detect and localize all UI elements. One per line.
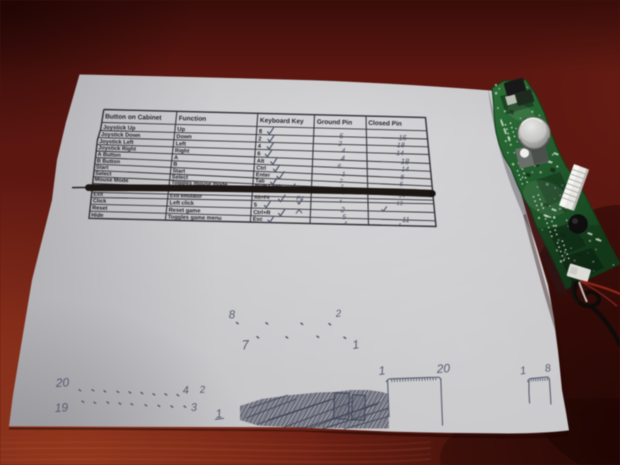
svg-text:4: 4 <box>341 154 345 163</box>
svg-text:6: 6 <box>337 163 341 170</box>
svg-text:2: 2 <box>340 205 345 214</box>
svg-text:Ctrl: Ctrl <box>256 166 266 172</box>
svg-text:Exit: Exit <box>93 192 103 198</box>
svg-text:Right: Right <box>175 148 190 155</box>
svg-text:Alt: Alt <box>257 159 265 165</box>
svg-text:Reset: Reset <box>92 205 108 211</box>
svg-text:Up: Up <box>177 127 185 133</box>
svg-text:Ctrl+R: Ctrl+R <box>253 210 270 216</box>
svg-text:Down: Down <box>176 134 192 140</box>
svg-text:Joystick Up: Joystick Up <box>103 125 136 132</box>
svg-text:20: 20 <box>435 361 451 376</box>
svg-text:11: 11 <box>402 215 410 224</box>
svg-text:13: 13 <box>396 201 403 207</box>
svg-text:1: 1 <box>342 171 346 178</box>
svg-text:4: 4 <box>182 385 189 397</box>
svg-text:2: 2 <box>337 141 342 148</box>
svg-text:Left click: Left click <box>169 200 194 207</box>
svg-text:Keyboard Key: Keyboard Key <box>260 117 304 125</box>
svg-text:Closed Pin: Closed Pin <box>368 120 402 128</box>
svg-text:Left: Left <box>176 141 187 147</box>
svg-text:4: 4 <box>344 221 347 227</box>
svg-text:B: B <box>173 162 177 168</box>
svg-text:Reset game: Reset game <box>169 208 201 215</box>
svg-text:19: 19 <box>54 400 68 415</box>
svg-text:20: 20 <box>54 375 69 390</box>
svg-text:Hide: Hide <box>91 213 103 219</box>
svg-text:18: 18 <box>401 157 411 166</box>
svg-text:Esc: Esc <box>253 217 263 223</box>
svg-text:14: 14 <box>401 166 409 173</box>
svg-text:18: 18 <box>397 142 405 149</box>
svg-text:15: 15 <box>398 133 407 142</box>
svg-text:2: 2 <box>258 136 261 142</box>
svg-text:Function: Function <box>179 115 207 123</box>
svg-text:Exit emulator: Exit emulator <box>170 193 202 200</box>
svg-text:Alt+F4: Alt+F4 <box>254 195 270 201</box>
svg-text:Button on Cabinet: Button on Cabinet <box>105 113 162 121</box>
svg-text:4: 4 <box>398 223 401 229</box>
svg-text:Joystick Down: Joystick Down <box>101 132 141 139</box>
svg-text:F4: F4 <box>296 195 304 202</box>
svg-text:6: 6 <box>257 151 260 157</box>
svg-text:Click: Click <box>93 198 107 204</box>
svg-text:A: A <box>174 155 178 161</box>
svg-text:Ground Pin: Ground Pin <box>317 119 353 127</box>
